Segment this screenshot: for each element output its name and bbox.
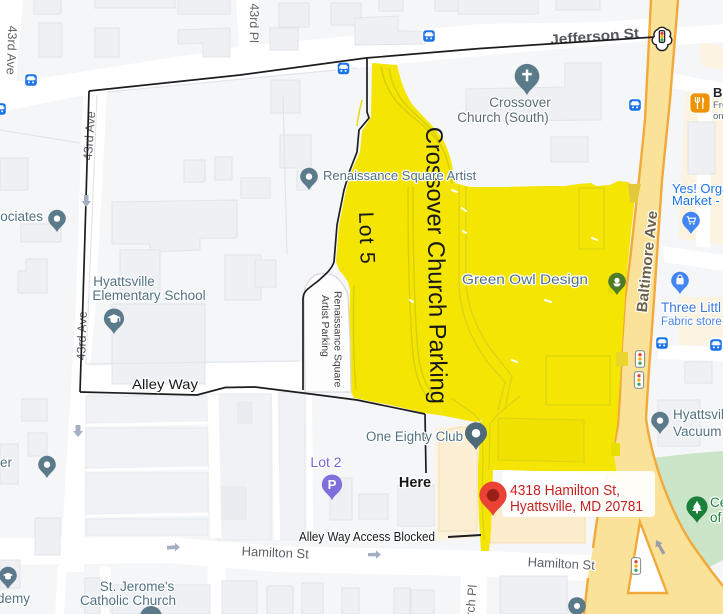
svg-text:Church (South): Church (South) — [457, 110, 549, 125]
svg-text:Fre: Fre — [713, 100, 723, 111]
svg-text:ociates: ociates — [0, 209, 43, 224]
svg-text:Green Owl Design: Green Owl Design — [462, 271, 588, 287]
svg-text:Fabric store: Fabric store — [661, 316, 722, 328]
svg-text:Renaissance Square Artist: Renaissance Square Artist — [323, 168, 477, 183]
svg-text:Here: Here — [399, 475, 431, 491]
svg-text:Alley Way: Alley Way — [132, 376, 198, 392]
svg-text:Artist Parking: Artist Parking — [319, 295, 330, 357]
svg-text:Market -: Market - — [672, 193, 720, 208]
svg-text:Hyattsville, MD 20781: Hyattsville, MD 20781 — [510, 498, 643, 515]
svg-text:er: er — [0, 455, 12, 470]
svg-text:St. Jerome's: St. Jerome's — [100, 579, 175, 594]
svg-text:Elementary School: Elementary School — [92, 288, 205, 303]
svg-text:Catholic Church: Catholic Church — [80, 593, 176, 608]
svg-text:on: on — [713, 111, 723, 122]
svg-text:Hyattsville: Hyattsville — [673, 407, 723, 422]
svg-text:P: P — [328, 477, 337, 492]
svg-text:Bu: Bu — [713, 85, 723, 100]
svg-text:Vacuum: Vacuum — [673, 424, 722, 439]
svg-text:4318 Hamilton St,: 4318 Hamilton St, — [510, 482, 620, 499]
svg-text:of: of — [710, 510, 722, 525]
svg-text:Ce: Ce — [710, 495, 723, 510]
svg-text:Lot 2: Lot 2 — [310, 454, 341, 470]
svg-text:43rd Ave: 43rd Ave — [4, 25, 20, 75]
svg-text:rch Pl: rch Pl — [463, 584, 480, 614]
svg-text:Alley Way Access Blocked: Alley Way Access Blocked — [299, 530, 435, 544]
svg-text:Crossover: Crossover — [489, 95, 551, 110]
svg-text:Hyattsville: Hyattsville — [93, 274, 155, 289]
svg-text:Lot 5: Lot 5 — [354, 211, 379, 264]
svg-text:demy: demy — [0, 591, 30, 606]
svg-text:One Eighty Club: One Eighty Club — [366, 429, 463, 444]
svg-text:Hamilton St: Hamilton St — [241, 544, 309, 562]
svg-text:Renaissance Square: Renaissance Square — [332, 291, 343, 388]
svg-text:43rd Pl: 43rd Pl — [247, 3, 262, 43]
svg-text:Three Littl: Three Littl — [661, 300, 721, 315]
